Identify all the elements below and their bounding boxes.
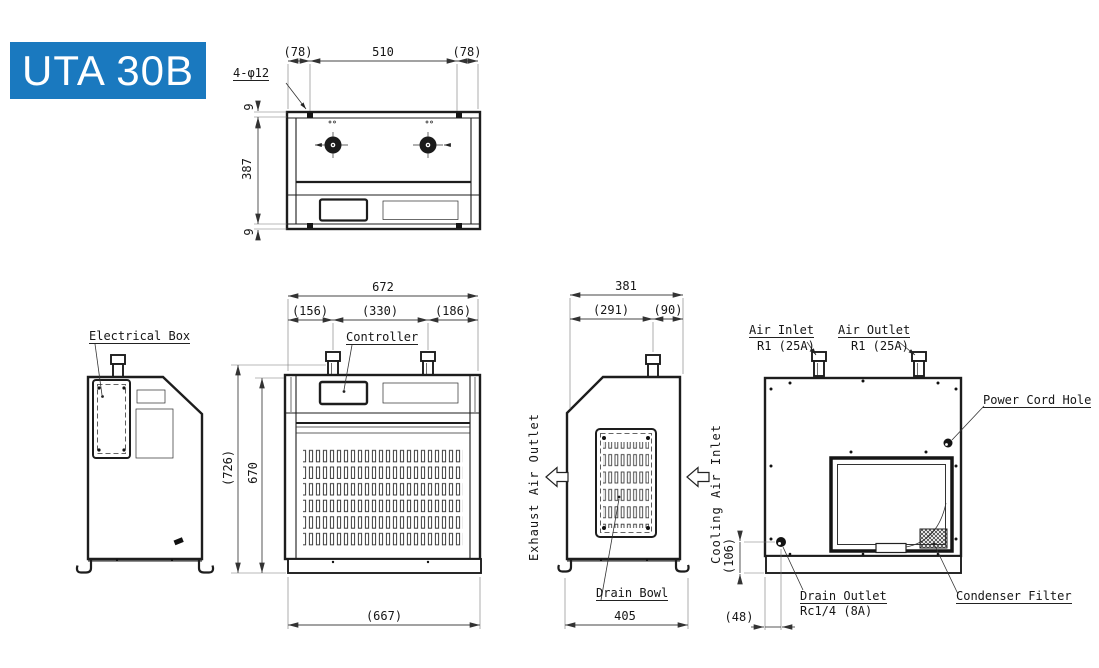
electrical-box-callout: Electrical Box xyxy=(89,329,190,344)
drain-outlet-callout: Drain Outlet xyxy=(800,589,887,604)
dim-front-seg-center: (330) xyxy=(358,304,402,318)
cooling-air-inlet-label: Cooling Air Inlet xyxy=(709,424,723,564)
dim-height-overall: (726) xyxy=(221,450,235,486)
dim-side-base-depth: 405 xyxy=(600,609,650,623)
dim-height-body: 670 xyxy=(246,460,260,486)
mount-hole xyxy=(456,223,462,228)
dim-side-seg-rear: (90) xyxy=(650,303,686,317)
dim-top-hole-pitch: 510 xyxy=(360,45,406,59)
cooling-flow-arrow xyxy=(687,468,709,487)
dim-edge-top: 9 xyxy=(242,100,256,114)
mount-hole xyxy=(456,113,462,118)
front-view xyxy=(231,296,481,629)
dim-edge-bottom: 9 xyxy=(242,225,256,239)
pipe-fitting xyxy=(111,355,125,377)
handle-notch xyxy=(876,544,906,553)
controller-plan xyxy=(320,200,367,221)
electrical-box xyxy=(93,380,130,458)
dim-drain-offset: (48) xyxy=(722,610,756,624)
pipe-fitting xyxy=(421,352,435,375)
left-side-view xyxy=(77,344,213,573)
right-side-view xyxy=(546,295,709,629)
hole-callout: 4-φ12 xyxy=(233,66,269,81)
controller-callout: Controller xyxy=(346,330,418,345)
exhaust-air-outlet-label: Exhaust Air Outlet xyxy=(527,413,541,561)
air-outlet-callout: Air Outlet xyxy=(838,323,910,338)
rear-view xyxy=(740,342,984,630)
drawing-sheet: UTA 30B xyxy=(0,0,1099,668)
dim-side-seg-front: (291) xyxy=(589,303,633,317)
dim-side-depth: 381 xyxy=(603,279,649,293)
air-inlet-fitting xyxy=(812,352,826,376)
drain-bowl-callout: Drain Bowl xyxy=(596,586,668,601)
pipe-fitting xyxy=(646,355,660,377)
power-cord-hole xyxy=(944,439,953,448)
air-outlet-spec: R1 (25A) xyxy=(851,339,909,353)
dim-front-seg-left: (156) xyxy=(288,304,332,318)
front-grille xyxy=(303,447,463,547)
exhaust-flow-arrow xyxy=(546,468,568,487)
power-cord-callout: Power Cord Hole xyxy=(983,393,1091,408)
dim-front-width: 672 xyxy=(355,280,411,294)
dim-top-depth: 387 xyxy=(240,156,254,182)
dim-top-left-flange: (78) xyxy=(283,45,313,59)
model-title: UTA 30B xyxy=(22,47,194,95)
rear-base xyxy=(766,556,961,573)
front-base xyxy=(288,559,481,573)
drain-outlet xyxy=(776,537,786,547)
mount-hole xyxy=(307,113,313,118)
dim-base-width: (667) xyxy=(355,609,413,623)
mount-hole xyxy=(307,223,313,228)
top-view xyxy=(254,61,480,238)
air-inlet-spec: R1 (25A) xyxy=(757,339,815,353)
dim-drain-height: (106) xyxy=(722,536,736,576)
condenser-filter-callout: Condenser Filter xyxy=(956,589,1072,604)
controller-panel xyxy=(320,382,367,404)
model-badge: UTA 30B xyxy=(10,42,206,99)
dim-top-right-flange: (78) xyxy=(452,45,482,59)
pipe-fitting xyxy=(326,352,340,375)
drain-outlet-spec: Rc1/4 (8A) xyxy=(800,604,872,618)
dim-front-seg-right: (186) xyxy=(431,304,475,318)
air-inlet-callout: Air Inlet xyxy=(749,323,814,338)
air-outlet-fitting xyxy=(912,352,926,376)
